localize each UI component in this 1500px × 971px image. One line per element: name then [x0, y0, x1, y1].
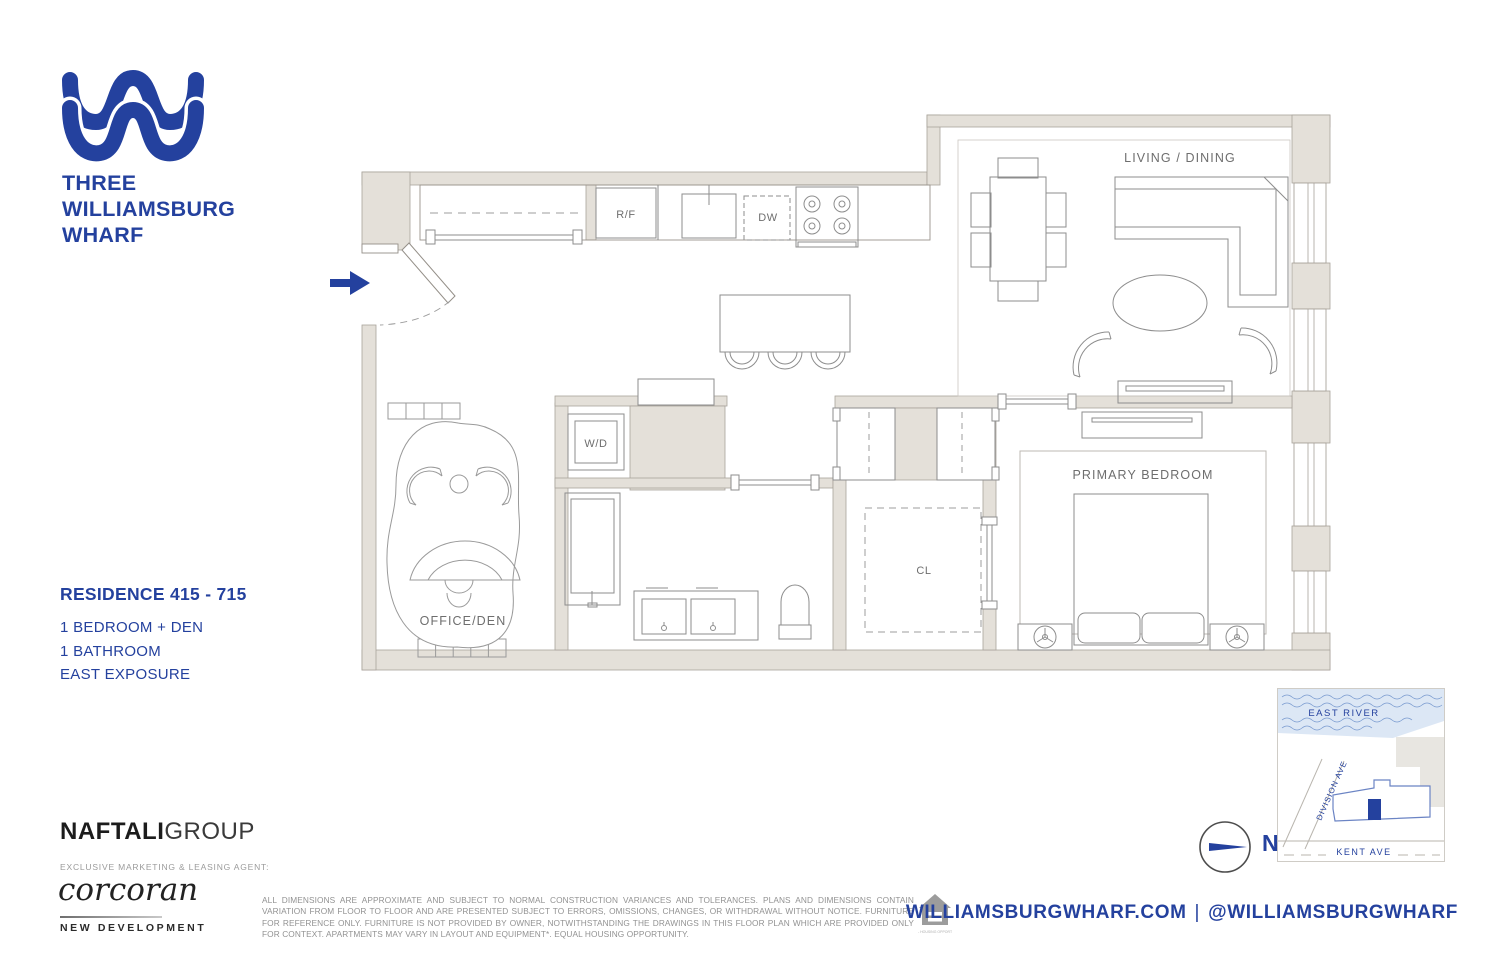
residence-title: RESIDENCE 415 - 715 — [60, 584, 247, 605]
agent-heading: EXCLUSIVE MARKETING & LEASING AGENT: — [60, 862, 269, 872]
brand-line-2: WILLIAMSBURG — [62, 196, 235, 222]
agent-division: NEW DEVELOPMENT — [60, 922, 206, 934]
shower — [565, 493, 620, 605]
primary-bedroom — [1018, 412, 1266, 650]
compass-icon — [1198, 820, 1254, 876]
equal-housing-caption: EQUAL HOUSING OPPORTUNITY — [918, 930, 952, 934]
coffee-table — [1113, 275, 1207, 331]
living-dining — [958, 140, 1290, 403]
residence-spec-bedroom: 1 BEDROOM + DEN — [60, 616, 247, 640]
bathroom — [565, 493, 811, 640]
agent-logo-rule — [60, 916, 162, 918]
sofa — [1115, 177, 1288, 307]
toilet — [781, 585, 809, 625]
office-den-label: OFFICE/DEN — [420, 614, 507, 628]
pillow — [1142, 613, 1204, 643]
developer-logo-bold: NAFTALI — [60, 818, 164, 845]
entry-door — [362, 243, 455, 325]
site-map: EAST RIVER DIVISION AVE KENT AVE — [1277, 688, 1445, 862]
range-symbol — [796, 187, 858, 247]
washer-dryer-label: W/D — [584, 438, 607, 450]
developer-logo-light: GROUP — [164, 818, 255, 845]
kitchen-island — [720, 295, 850, 352]
residence-spec-bathroom: 1 BATHROOM — [60, 640, 247, 664]
floor-plan: R/F DW LIVING / DINING W/D OFFICE/DEN CL… — [362, 113, 1330, 670]
dining-table — [990, 177, 1046, 281]
brand-line-3: WHARF — [62, 222, 235, 248]
residence-info: RESIDENCE 415 - 715 1 BEDROOM + DEN 1 BA… — [60, 584, 247, 687]
kent-ave-label: KENT AVE — [1336, 847, 1391, 857]
dishwasher-label: DW — [758, 212, 778, 224]
primary-bedroom-label: PRIMARY BEDROOM — [1072, 468, 1213, 482]
brand-line-1: THREE — [62, 170, 235, 196]
website-line: WILLIAMSBURGWHARF.COM|@WILLIAMSBURGWHARF — [906, 902, 1458, 924]
east-river-label: EAST RIVER — [1308, 708, 1379, 719]
closet-label: CL — [916, 565, 931, 577]
residence-spec-exposure: EAST EXPOSURE — [60, 663, 247, 687]
waves-logo-icon — [58, 66, 208, 170]
refrigerator-label: R/F — [616, 209, 636, 221]
floor-plan-sheet: { "brand": { "logo_icon": "waves-logo-ic… — [0, 0, 1500, 971]
agent-logo: corcoran — [58, 872, 198, 908]
kitchen — [420, 185, 930, 369]
dresser — [1082, 412, 1202, 438]
floor-plan-drawing — [362, 113, 1330, 670]
compass-north-label: N — [1262, 830, 1279, 857]
residence-location-marker — [1368, 799, 1381, 820]
living-dining-label: LIVING / DINING — [1124, 151, 1236, 165]
vanity — [634, 591, 758, 640]
pillow — [1078, 613, 1140, 643]
developer-logo: NAFTALIGROUP — [60, 818, 255, 846]
disclaimer-text: ALL DIMENSIONS ARE APPROXIMATE AND SUBJE… — [262, 895, 914, 940]
building-outline — [1333, 780, 1430, 821]
brand-name: THREE WILLIAMSBURG WHARF — [62, 170, 235, 248]
social-handle: @WILLIAMSBURGWHARF — [1208, 902, 1458, 923]
entry-arrow-icon — [330, 271, 370, 295]
website-url: WILLIAMSBURGWHARF.COM — [906, 902, 1187, 923]
website-separator: | — [1187, 902, 1209, 923]
